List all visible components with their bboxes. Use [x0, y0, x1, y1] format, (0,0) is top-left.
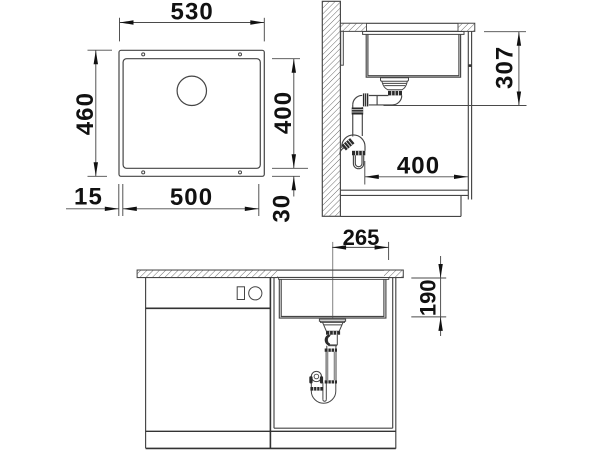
svg-text:400: 400: [270, 91, 297, 134]
svg-text:30: 30: [268, 194, 295, 223]
svg-text:500: 500: [170, 184, 213, 211]
svg-text:15: 15: [74, 183, 103, 210]
svg-text:265: 265: [343, 225, 380, 250]
svg-text:190: 190: [416, 279, 441, 316]
svg-text:307: 307: [492, 46, 519, 89]
svg-text:460: 460: [72, 92, 99, 135]
svg-text:530: 530: [171, 0, 214, 26]
svg-text:400: 400: [397, 152, 440, 179]
